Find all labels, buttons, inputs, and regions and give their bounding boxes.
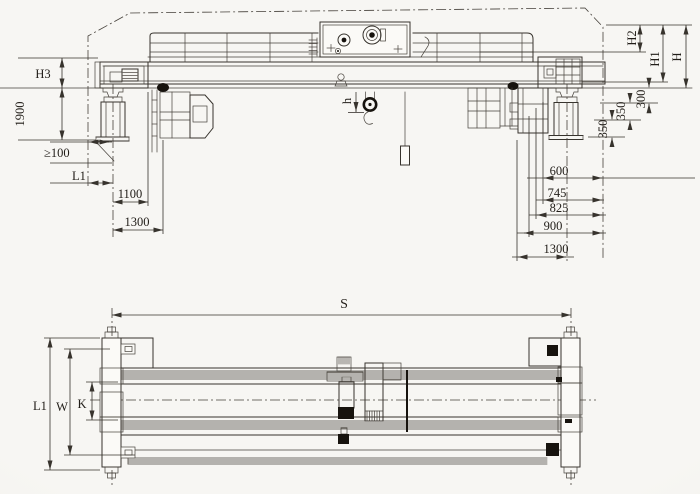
dim-label-745: 745 (548, 186, 567, 200)
dim-label-S: S (340, 297, 348, 312)
walkway-plan (128, 450, 561, 464)
dim-label-350-lower: 350 (596, 120, 610, 139)
dim-label-W: W (56, 400, 68, 414)
dim-label-1300-right: 1300 (544, 242, 569, 256)
hoist-unit (339, 382, 354, 408)
dim-label-H3: H3 (35, 67, 50, 81)
dim-label-1300-left: 1300 (125, 215, 150, 229)
dim-label-H: H (670, 52, 684, 61)
trolley-wire-dot-right (508, 82, 519, 90)
front-elevation-view: H3 1900 ≥100 L1 1100 1300 h (0, 8, 695, 262)
dim-label-H1: H1 (648, 51, 662, 66)
dim-label-K: K (77, 397, 86, 411)
girders-plan (121, 368, 561, 435)
crab-trolley-plan (327, 357, 407, 444)
hook-height-dim: h (340, 92, 364, 113)
right-end-carriage-plan (529, 327, 582, 478)
plan-view: S (33, 297, 596, 486)
dim-label-h: h (340, 97, 354, 104)
dim-label-1900: 1900 (13, 102, 27, 127)
dim-label-900: 900 (544, 219, 563, 233)
hook-block (364, 92, 376, 124)
left-under-girder-structure (152, 90, 213, 152)
dim-label-350-upper: 350 (614, 102, 628, 121)
bridge-girder (100, 57, 605, 88)
technical-drawing-sheet: H3 1900 ≥100 L1 1100 1300 h (0, 0, 700, 494)
crane-technical-drawing: H3 1900 ≥100 L1 1100 1300 h (0, 0, 700, 494)
trolley-wire-dot-left (157, 83, 169, 92)
dim-label-L1-plan: L1 (33, 399, 47, 413)
dim-label-600: 600 (550, 164, 569, 178)
pendant-controller (401, 92, 410, 165)
dim-label-825: 825 (550, 201, 569, 215)
dim-label-L1-front: L1 (72, 169, 86, 183)
front-dims-right: H2 H1 H 300 350 350 600 745 (480, 25, 695, 261)
span-dim: S (112, 297, 571, 315)
dim-label-1100: 1100 (118, 187, 143, 201)
dim-label-300: 300 (634, 90, 648, 109)
trolley-frame (365, 363, 383, 421)
dim-label-H2: H2 (625, 30, 639, 45)
dim-label-clearance: ≥100 (44, 146, 70, 160)
hoist-trolley (309, 22, 410, 57)
